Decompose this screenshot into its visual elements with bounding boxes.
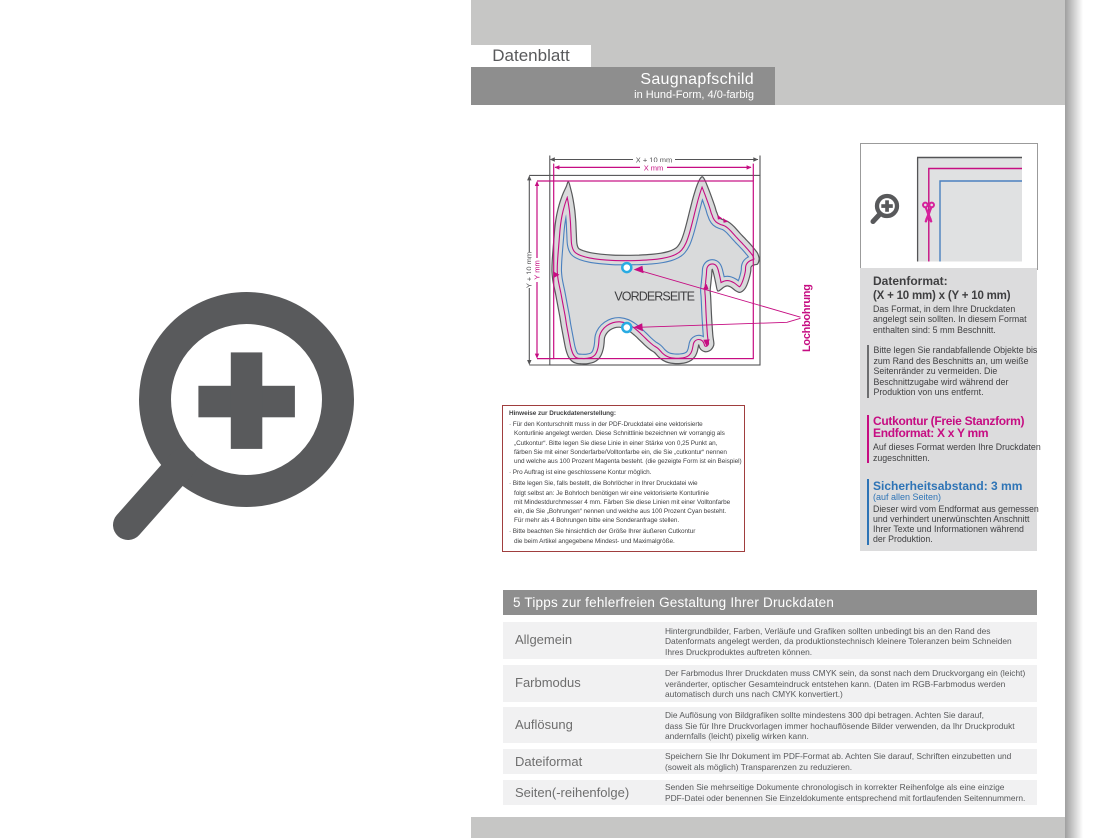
svg-text:X mm: X mm	[644, 163, 664, 172]
svg-text:VORDERSEITE: VORDERSEITE	[614, 290, 694, 304]
svg-text:Y mm: Y mm	[533, 260, 542, 279]
